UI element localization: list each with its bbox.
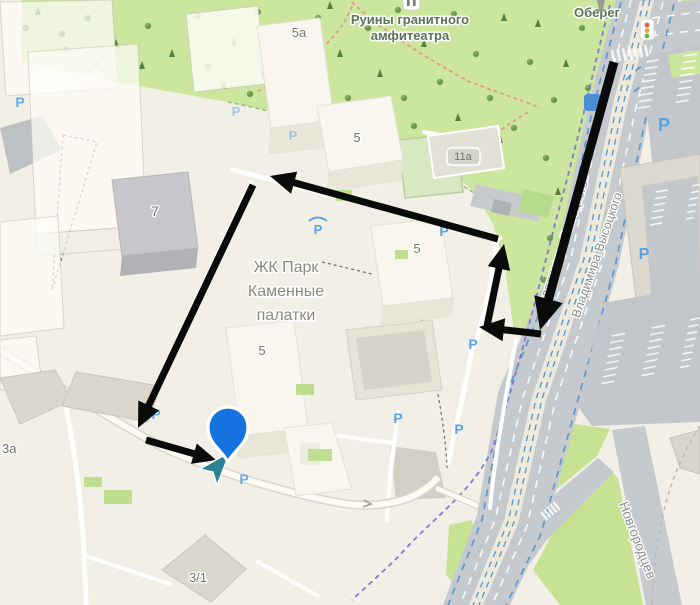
parking-icon[interactable]: P bbox=[658, 115, 670, 135]
parking-icon[interactable]: P bbox=[239, 471, 248, 487]
traffic-light-icon bbox=[640, 19, 654, 40]
building-label-5a: 5а bbox=[292, 25, 307, 40]
svg-text:P: P bbox=[289, 128, 298, 143]
building-label-5: 5 bbox=[258, 343, 265, 358]
parking-icon[interactable]: P bbox=[639, 246, 650, 263]
complex-name: Каменные bbox=[248, 283, 324, 300]
svg-text:P: P bbox=[454, 421, 463, 437]
svg-text:P: P bbox=[393, 410, 402, 426]
parking-icon[interactable]: P bbox=[454, 421, 463, 437]
parking-icon[interactable]: P bbox=[468, 336, 477, 352]
svg-text:P: P bbox=[239, 471, 248, 487]
map-canvas[interactable]: Руины гранитного амфитеатра Оберег ЖК Па… bbox=[0, 0, 700, 605]
ruins-monument-icon[interactable] bbox=[403, 0, 420, 10]
obereg-poi-label: Оберег bbox=[574, 5, 621, 20]
building-label-5: 5 bbox=[353, 130, 360, 145]
building-label-3a: 3а bbox=[2, 441, 17, 456]
building-label-11a: 11а bbox=[454, 151, 472, 163]
svg-text:P: P bbox=[314, 222, 323, 237]
svg-text:P: P bbox=[232, 104, 241, 119]
svg-text:P: P bbox=[15, 94, 24, 110]
complex-name: палатки bbox=[257, 307, 316, 324]
svg-text:P: P bbox=[468, 336, 477, 352]
building-label-7: 7 bbox=[151, 203, 159, 219]
complex-name: ЖК Парк bbox=[254, 259, 320, 276]
parking-icon[interactable]: P bbox=[15, 94, 24, 110]
parking-icon[interactable]: P bbox=[289, 128, 298, 143]
park-poi-label: Руины гранитного bbox=[351, 12, 469, 27]
building-label-5: 5 bbox=[413, 241, 420, 256]
park-poi-label: амфитеатра bbox=[371, 28, 450, 43]
parking-icon[interactable]: P bbox=[393, 410, 402, 426]
parking-icon[interactable]: P bbox=[232, 104, 241, 119]
svg-text:P: P bbox=[639, 246, 650, 263]
building-label-3-1: 3/1 bbox=[189, 570, 207, 585]
svg-text:P: P bbox=[658, 115, 670, 135]
